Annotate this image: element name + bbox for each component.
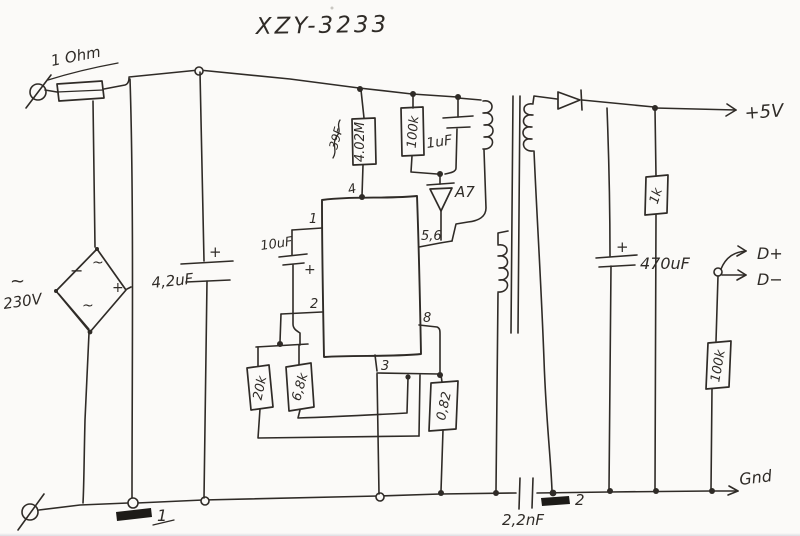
hand-drawn-schematic: XZY-3233 1 Ohm ~ 230V ~ − ~ + xyxy=(0,0,800,536)
wire xyxy=(496,293,498,491)
left-vertical-wire xyxy=(130,79,133,498)
primary-100k-label: 100k xyxy=(405,115,423,149)
wire xyxy=(293,265,300,345)
polarity-plus: + xyxy=(616,238,629,256)
wire xyxy=(533,96,557,103)
zener-label: A7 xyxy=(454,183,475,201)
snubber-cap-label: 1uF xyxy=(425,132,454,152)
diode-triangle xyxy=(430,188,452,211)
pin-4-label: 4 xyxy=(346,181,358,198)
scanned-schematic-page: XZY-3233 1 Ohm ~ 230V ~ − ~ + xyxy=(0,0,800,536)
ink-blob xyxy=(54,289,58,293)
output-cap-label: 470uF xyxy=(640,254,691,273)
junction-circle xyxy=(201,497,209,505)
bulk-cap-label: 4,2uF xyxy=(151,270,195,292)
junction-dot xyxy=(357,86,363,92)
schematic-title: XZY-3233 xyxy=(255,12,390,40)
r1k-label: 1k xyxy=(647,186,666,206)
wire xyxy=(280,314,281,342)
vout-label: +5V xyxy=(744,100,786,124)
cap-plates xyxy=(443,116,473,128)
wire xyxy=(655,108,736,110)
pin1-stub xyxy=(292,228,322,230)
bottom-rail-left xyxy=(137,493,516,503)
secondary-100k-label: 100k xyxy=(708,348,728,383)
primary-winding xyxy=(483,101,493,149)
wire xyxy=(458,98,481,100)
wire-to-bridge xyxy=(93,101,95,247)
ac-voltage-label: 230V xyxy=(2,289,45,312)
startup-resistor-label: 4.02M xyxy=(353,122,368,162)
wire xyxy=(498,231,508,244)
wire xyxy=(361,90,364,118)
wire xyxy=(655,109,656,176)
wire xyxy=(39,503,128,510)
wire xyxy=(298,378,408,418)
transformer xyxy=(452,96,557,491)
vcc-capacitor: + 10uF xyxy=(259,230,315,345)
bridge-plus-mark: + xyxy=(112,280,124,296)
wire xyxy=(607,108,610,256)
pin-2-label: 2 xyxy=(310,297,318,312)
wire xyxy=(441,430,443,491)
core-lines xyxy=(511,96,520,333)
junction-dot xyxy=(653,488,659,494)
fuse-inner-line xyxy=(57,90,103,92)
wire xyxy=(711,389,712,490)
wire xyxy=(534,151,552,491)
pin-56-label: 5,6 xyxy=(421,229,442,244)
pin2-stub xyxy=(281,312,322,314)
polarity-plus: + xyxy=(304,262,316,278)
junction-dot xyxy=(607,488,613,494)
bridge-rectifier: ~ − ~ + xyxy=(54,247,131,503)
dplus-label: D+ xyxy=(757,244,783,263)
data-line-branch: D+ D− 100k xyxy=(706,244,783,490)
pin8-wire xyxy=(419,325,440,372)
junction-circle xyxy=(195,67,203,75)
polarity-plus: + xyxy=(209,243,222,261)
y-cap-label: 2,2nF xyxy=(502,511,544,529)
bottom-rail-right xyxy=(537,491,738,493)
fuse-label: 1 Ohm xyxy=(49,43,102,70)
junction-circle xyxy=(376,493,384,501)
diode-triangle xyxy=(558,92,580,109)
pin3-stub xyxy=(375,355,377,371)
junction-dot xyxy=(405,374,410,379)
scan-speck xyxy=(331,7,334,10)
r20k-label: 20k xyxy=(251,374,271,401)
wire xyxy=(441,375,442,382)
ac-wave-symbol: ~ xyxy=(10,271,25,292)
diode-bar xyxy=(427,183,454,185)
sense-resistor: 0,82 xyxy=(377,372,458,494)
wire xyxy=(104,78,129,89)
mains-input: 1 Ohm ~ 230V xyxy=(2,43,129,530)
wire xyxy=(362,165,363,196)
cap-plates xyxy=(596,255,637,267)
junction-circle xyxy=(128,498,138,508)
pin-1-label: 1 xyxy=(309,212,317,227)
bridge-ac-mark: ~ xyxy=(92,255,104,271)
gnd-label: Gnd xyxy=(738,466,774,489)
cap-plates xyxy=(279,254,307,265)
bleeder-resistor: 1k xyxy=(645,109,668,490)
bridge-minus-mark: − xyxy=(70,261,83,280)
wire xyxy=(127,287,131,289)
output-capacitor: + 470uF xyxy=(596,108,691,490)
cap-plates xyxy=(519,478,533,509)
wire xyxy=(204,281,207,498)
wire xyxy=(419,375,420,436)
wire xyxy=(655,215,656,490)
pin-8-label: 8 xyxy=(423,311,431,326)
y-capacitor: 2,2nF xyxy=(502,478,544,529)
aux-winding xyxy=(498,245,508,292)
wire xyxy=(609,266,611,490)
junction-dot xyxy=(709,488,715,494)
top-rail xyxy=(129,70,457,97)
secondary-winding xyxy=(523,104,533,151)
probe-mark-2 xyxy=(541,496,570,506)
ink-blob xyxy=(95,247,99,251)
probe-mark-2-label: 2 xyxy=(575,491,585,509)
snubber-capacitor: 1uF xyxy=(425,98,473,174)
wire xyxy=(200,72,204,261)
wire xyxy=(716,276,718,341)
vcc-cap-label: 10uF xyxy=(259,235,294,254)
output-rectifier: +5V xyxy=(558,90,786,124)
ic-body xyxy=(322,196,421,357)
wire xyxy=(45,90,57,92)
junction-dot xyxy=(359,194,365,200)
wire xyxy=(377,374,379,494)
bulk-capacitor: + 4,2uF xyxy=(151,72,233,498)
wire xyxy=(582,100,654,107)
r6k8-label: 6,8k xyxy=(289,371,311,403)
junction-dot xyxy=(550,490,557,497)
sense-resistor-label: 0,82 xyxy=(434,390,455,421)
feedback-divider: 20k 6,8k xyxy=(247,314,420,438)
probe-mark-1 xyxy=(116,508,152,521)
bridge-ac-mark: ~ xyxy=(82,298,94,314)
wire xyxy=(83,333,89,503)
pin3-wire xyxy=(377,373,439,374)
startup-resistor: 4.02M 39F xyxy=(326,90,376,196)
dminus-label: D− xyxy=(757,270,783,289)
pin-3-label: 3 xyxy=(381,359,389,374)
wire xyxy=(411,156,437,174)
